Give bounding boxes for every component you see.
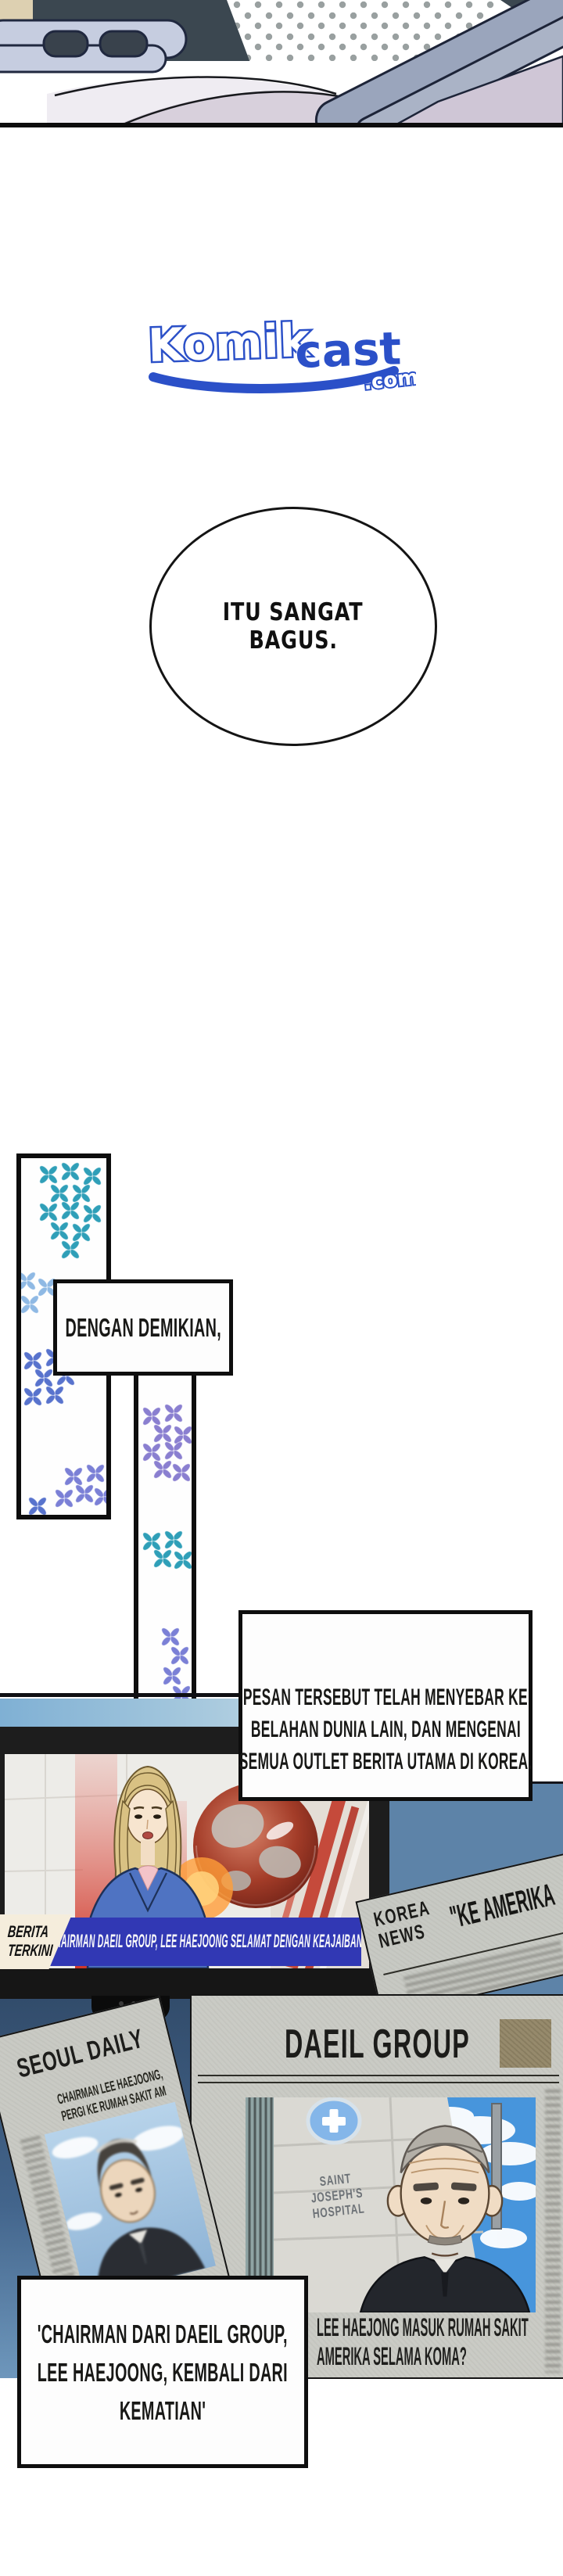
curtain-panel-middle xyxy=(134,1339,196,1711)
blurred-article-column xyxy=(545,2090,561,2373)
caption-box-chairman: 'CHAIRMAN DARI DAEIL GROUP, LEE HAEJOONG… xyxy=(17,2276,308,2468)
masthead-rule-2 xyxy=(198,2082,559,2083)
hospital-bed-art xyxy=(0,0,563,127)
caption-text-line2: LEE HAEJOONG, KEMBALI DARI xyxy=(38,2353,288,2391)
news-ticker-text: "CHAIRMAN DAEIL GROUP, LEE HAEJOONG SELA… xyxy=(45,1931,367,1953)
breaking-news-text-line2: TERKINI xyxy=(7,1942,52,1961)
speech-text-line2: BAGUS. xyxy=(249,626,337,655)
masthead-block xyxy=(500,2019,551,2068)
caption-text: DENGAN DEMIKIAN, xyxy=(65,1313,221,1343)
caption-text-line3: KEMATIAN' xyxy=(120,2391,206,2430)
caption-text-line3: SEMUA OUTLET BERITA UTAMA DI KOREA. xyxy=(239,1745,533,1778)
site-logo: Komik cast .com xyxy=(142,305,416,400)
caption-text-line2: BELAHAN DUNIA LAIN, DAN MENGENAI xyxy=(250,1713,520,1745)
site-logo-art: Komik cast .com xyxy=(142,305,416,400)
photo-caption-line1: LEE HAEJONG MASUK RUMAH SAKIT xyxy=(317,2313,529,2342)
speech-text-line1: ITU SANGAT xyxy=(223,598,364,626)
hospital-bed-panel xyxy=(0,0,563,127)
caption-box-dengan: DENGAN DEMIKIAN, xyxy=(53,1279,233,1376)
newspaper-headline: "KE AMERIKA xyxy=(446,1878,558,1936)
caption-box-pesan: PESAN TERSEBUT TELAH MENYEBAR KE BELAHAN… xyxy=(238,1610,533,1801)
logo-text-dotcom: .com xyxy=(363,366,416,395)
caption-text-line1: PESAN TERSEBUT TELAH MENYEBAR KE xyxy=(243,1681,528,1713)
photo-caption-line2: AMERIKA SELAMA KOMA? xyxy=(317,2342,529,2371)
logo-text-komik: Komik xyxy=(147,314,311,372)
news-ticker: "CHAIRMAN DAEIL GROUP, LEE HAEJOONG SELA… xyxy=(50,1918,361,1966)
caption-text-line1: 'CHAIRMAN DARI DAEIL GROUP, xyxy=(38,2315,288,2353)
newspaper-title: DAEIL GROUP xyxy=(262,2021,493,2068)
breaking-news-text-line1: BERITA xyxy=(7,1923,52,1942)
chairman-portrait xyxy=(351,2115,536,2312)
comic-page: Komik cast .com ITU SANGAT BAGUS. xyxy=(0,0,563,2576)
speech-bubble: ITU SANGAT BAGUS. xyxy=(149,507,437,746)
flower-pattern xyxy=(138,1344,192,1706)
masthead-rule-1 xyxy=(198,2075,559,2076)
